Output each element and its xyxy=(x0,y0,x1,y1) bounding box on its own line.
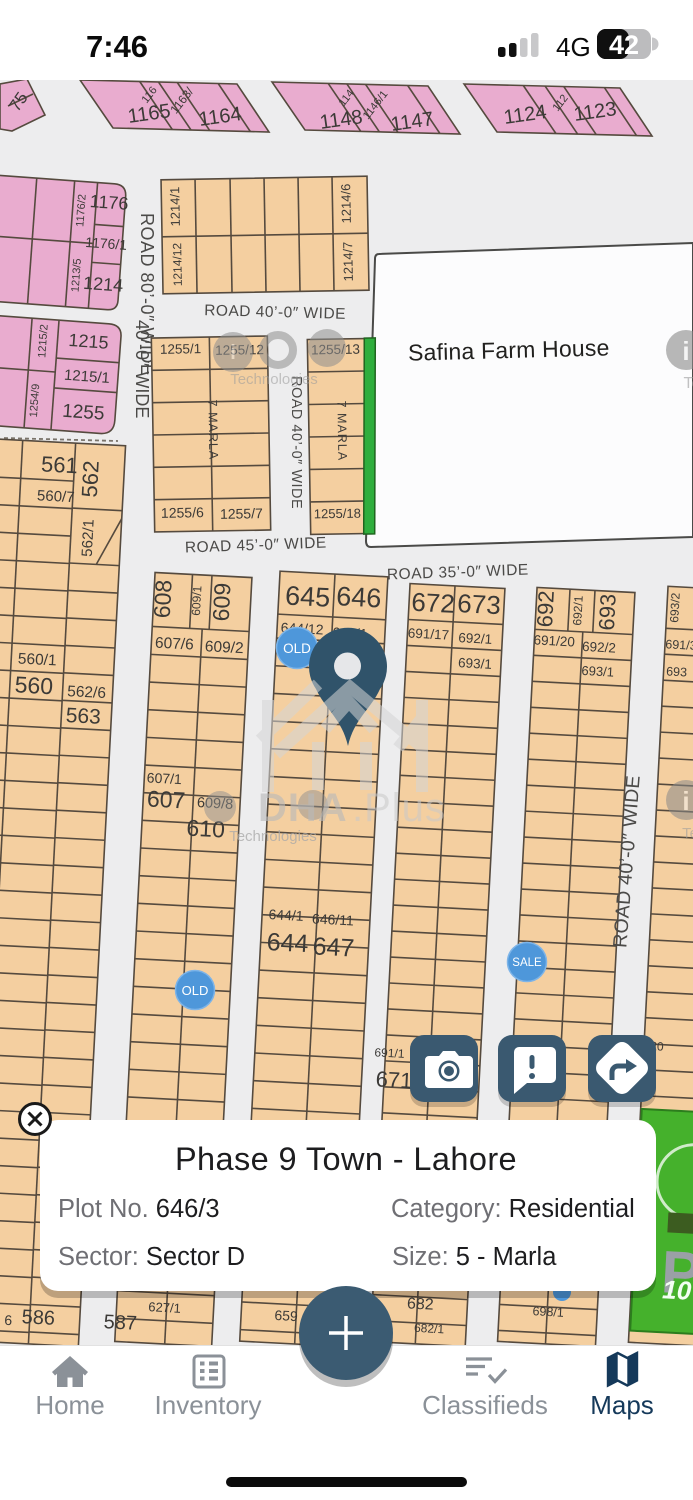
svg-text:1176/2: 1176/2 xyxy=(74,194,88,228)
svg-text:OLD: OLD xyxy=(182,983,209,998)
svg-text:692/2: 692/2 xyxy=(582,639,617,656)
svg-text:563: 563 xyxy=(65,704,101,729)
svg-text:562: 562 xyxy=(77,460,104,498)
svg-text:40’-0″ WIDE: 40’-0″ WIDE xyxy=(132,320,152,418)
svg-text:Inventory: Inventory xyxy=(155,1390,262,1420)
svg-text:1215/2: 1215/2 xyxy=(36,324,50,358)
svg-text:561: 561 xyxy=(40,451,78,478)
svg-text:7 MARLA: 7 MARLA xyxy=(334,401,349,462)
svg-text:671: 671 xyxy=(375,1066,413,1093)
svg-text:673: 673 xyxy=(457,588,502,620)
svg-text:644/1: 644/1 xyxy=(268,906,304,924)
svg-text:1176: 1176 xyxy=(89,191,129,214)
svg-text:647: 647 xyxy=(312,932,355,962)
svg-text:1215: 1215 xyxy=(68,330,109,353)
svg-text:562/1: 562/1 xyxy=(79,519,98,557)
svg-text:691/17: 691/17 xyxy=(407,626,449,643)
svg-text:1215/1: 1215/1 xyxy=(63,367,110,387)
svg-text:Technologies: Technologies xyxy=(230,371,318,388)
svg-text:627/1: 627/1 xyxy=(148,1299,181,1316)
svg-text:609/2: 609/2 xyxy=(204,638,244,657)
svg-text:Plot No. 646/3: Plot No. 646/3 xyxy=(58,1195,220,1223)
svg-text:646: 646 xyxy=(336,581,383,613)
svg-text:586: 586 xyxy=(21,1306,55,1330)
svg-text:Te: Te xyxy=(682,825,693,842)
svg-text:ROAD 40’-0″ WIDE: ROAD 40’-0″ WIDE xyxy=(288,376,304,509)
svg-text:1214: 1214 xyxy=(82,273,123,296)
svg-text:1255/7: 1255/7 xyxy=(220,505,263,522)
svg-text:562/6: 562/6 xyxy=(67,683,107,702)
svg-text:609: 609 xyxy=(208,582,236,622)
svg-text:609/1: 609/1 xyxy=(189,585,205,616)
svg-text:691/1: 691/1 xyxy=(374,1045,405,1061)
svg-text:Safina Farm House: Safina Farm House xyxy=(408,334,610,365)
svg-text:i: i xyxy=(230,342,236,364)
svg-text:1214/12: 1214/12 xyxy=(170,242,185,286)
svg-text:587: 587 xyxy=(103,1311,137,1335)
svg-text:Classifieds: Classifieds xyxy=(422,1390,548,1420)
svg-text:Home: Home xyxy=(35,1390,104,1420)
svg-text:645: 645 xyxy=(284,581,331,613)
svg-text:7:46: 7:46 xyxy=(86,29,148,64)
svg-text:.Plus: .Plus xyxy=(352,786,446,830)
svg-text:7 MARLA: 7 MARLA xyxy=(205,400,220,461)
svg-text:Category: Residential: Category: Residential xyxy=(391,1195,635,1223)
svg-text:42: 42 xyxy=(609,30,639,60)
svg-text:691/20: 691/20 xyxy=(533,632,575,649)
svg-text:Te: Te xyxy=(684,375,693,392)
svg-text:560/7: 560/7 xyxy=(37,487,75,506)
svg-text:1255: 1255 xyxy=(61,401,105,425)
svg-text:1176/1: 1176/1 xyxy=(85,234,128,253)
svg-text:682/1: 682/1 xyxy=(414,1321,445,1337)
svg-text:OLD: OLD xyxy=(283,641,311,656)
svg-text:4G: 4G xyxy=(556,32,591,62)
svg-text:1255/6: 1255/6 xyxy=(161,504,204,521)
svg-text:1213/5: 1213/5 xyxy=(70,258,84,292)
svg-text:682: 682 xyxy=(407,1295,435,1313)
svg-text:644: 644 xyxy=(266,928,309,958)
svg-text:1255/18: 1255/18 xyxy=(314,506,361,522)
svg-text:560/1: 560/1 xyxy=(17,650,57,669)
svg-text:1214/1: 1214/1 xyxy=(167,187,183,227)
svg-text:1255/1: 1255/1 xyxy=(160,341,202,357)
svg-text:1214/7: 1214/7 xyxy=(340,242,356,282)
svg-text:693: 693 xyxy=(594,593,621,631)
svg-text:1214/6: 1214/6 xyxy=(338,184,354,224)
svg-text:560: 560 xyxy=(14,671,54,699)
svg-text:693/1: 693/1 xyxy=(458,655,493,672)
svg-text:672: 672 xyxy=(411,587,456,619)
svg-text:607/1: 607/1 xyxy=(146,769,182,787)
svg-text:608: 608 xyxy=(149,579,177,619)
svg-text:SALE: SALE xyxy=(512,957,542,969)
svg-text:692/1: 692/1 xyxy=(570,595,586,626)
svg-text:698/1: 698/1 xyxy=(532,1304,564,1320)
svg-text:10: 10 xyxy=(662,1274,693,1306)
svg-text:693: 693 xyxy=(666,664,688,679)
svg-text:Size: 5 - Marla: Size: 5 - Marla xyxy=(392,1243,557,1271)
svg-text:693/2: 693/2 xyxy=(667,592,683,623)
svg-text:646/11: 646/11 xyxy=(312,910,355,928)
svg-text:607/6: 607/6 xyxy=(155,635,195,654)
svg-text:692: 692 xyxy=(532,590,559,628)
svg-text:1254/9: 1254/9 xyxy=(28,383,42,417)
svg-text:607: 607 xyxy=(146,785,186,813)
svg-text:691/3: 691/3 xyxy=(665,637,693,653)
svg-text:Technologies: Technologies xyxy=(229,828,317,845)
svg-text:6: 6 xyxy=(4,1312,13,1328)
svg-text:693/1: 693/1 xyxy=(581,663,614,680)
svg-text:Sector: Sector D: Sector: Sector D xyxy=(58,1243,245,1271)
svg-text:692/1: 692/1 xyxy=(458,630,493,647)
svg-text:i: i xyxy=(682,336,689,366)
svg-text:DHA: DHA xyxy=(258,786,348,830)
svg-text:Maps: Maps xyxy=(590,1390,654,1420)
svg-text:659: 659 xyxy=(274,1307,298,1324)
svg-text:i: i xyxy=(682,786,689,816)
svg-text:Phase 9 Town - Lahore: Phase 9 Town - Lahore xyxy=(175,1141,517,1177)
